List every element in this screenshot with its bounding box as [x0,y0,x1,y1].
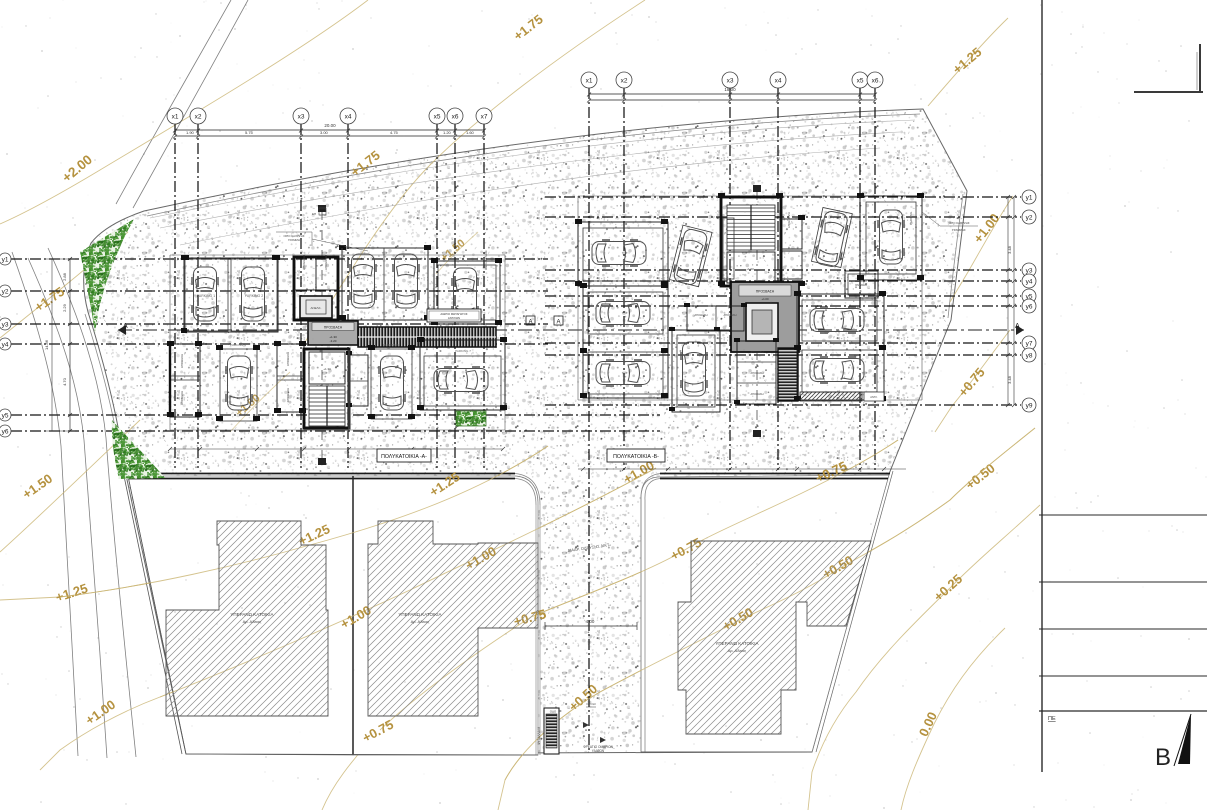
svg-text:+0.25: +0.25 [931,571,965,604]
svg-text:y3: y3 [1026,267,1033,274]
svg-text:y5: y5 [2,412,9,419]
svg-text:+1.00: +1.00 [746,267,754,271]
svg-text:A: A [556,320,560,326]
svg-text:x2: x2 [195,113,202,120]
svg-text:ΟΔΟ: ΟΔΟ [550,710,557,714]
svg-text:y3: y3 [2,321,9,328]
svg-text:ΥΠΕΡΑΝΩ ΚΑΤΟΙΚΙΑ: ΥΠΕΡΑΝΩ ΚΑΤΟΙΚΙΑ [715,641,758,646]
svg-text:ΑΠΟΘΗΚΗ: ΑΠΟΘΗΚΗ [750,350,763,354]
svg-text:y1: y1 [2,256,9,263]
svg-text:B: B [1155,744,1171,771]
svg-text:ΠΡΟΣΒΑΣΗ: ΠΡΟΣΒΑΣΗ [756,290,775,294]
svg-text:3.48: 3.48 [1007,375,1012,384]
svg-text:ΑΠΟΘΗΚΗ: ΑΠΟΘΗΚΗ [694,313,707,317]
svg-text:y6: y6 [1026,303,1033,310]
svg-text:20.00: 20.00 [324,123,336,128]
svg-text:PARKING 1: PARKING 1 [197,294,215,298]
svg-text:x3: x3 [727,77,734,84]
svg-text:A: A [528,320,532,326]
svg-text:4.00: 4.00 [586,619,595,624]
svg-text:x6: x6 [452,113,459,120]
svg-text:ΑΠΟΘΗΚΗ: ΑΠΟΘΗΚΗ [750,392,763,396]
svg-text:ΕΠ: ΕΠ [312,212,316,216]
svg-text:x6: x6 [872,77,879,84]
svg-text:4.75: 4.75 [390,130,399,135]
svg-text:Αρ. Αδειας: Αρ. Αδειας [728,648,747,653]
svg-text:ΑΠΟΘ. ΚΛΙΜ.: ΑΠΟΘ. ΚΛΙΜ. [787,212,791,228]
svg-text:ΠΟΛΥΚΑΤΟΙΚΙΑ -Α-: ΠΟΛΥΚΑΤΟΙΚΙΑ -Α- [381,454,427,460]
svg-text:ΠΕ: ΠΕ [1048,716,1056,722]
svg-text:PARKING: PARKING [909,211,913,225]
svg-text:y1: y1 [1026,194,1033,201]
svg-text:+1.25: +1.25 [950,44,985,77]
svg-text:+0.75: +0.75 [955,365,988,400]
svg-text:x5: x5 [857,77,864,84]
svg-text:+1.00: +1.00 [761,297,769,301]
svg-text:ΓΡΑΜΜΗΣ: ΓΡΑΜΜΗΣ [952,228,966,232]
svg-text:1.60: 1.60 [466,130,475,135]
svg-text:ΨΥΓΑΛΛΑ Μ: ΨΥΓΑΛΛΑ Μ [537,727,541,745]
svg-text:PARKING 7: PARKING 7 [455,349,471,353]
svg-text:y4: y4 [1026,278,1033,285]
svg-text:ΟΡΙΟ ΚΑΛΥΨΗΣ: ΟΡΙΟ ΚΑΛΥΨΗΣ [948,221,969,225]
svg-text:ΥΔΑΤΩΝ: ΥΔΑΤΩΝ [592,749,605,753]
svg-text:ΑΠΟΘΗΚΗ: ΑΠΟΘΗΚΗ [180,391,184,405]
svg-text:14.86: 14.86 [44,339,49,350]
svg-text:ΑΠΟΘΗΚΗ: ΑΠΟΘΗΚΗ [286,352,290,366]
svg-text:ΑΠΟΘΗΚΗ: ΑΠΟΘΗΚΗ [723,313,736,317]
svg-text:y2: y2 [1026,214,1033,221]
svg-text:PARKING 6: PARKING 6 [383,343,399,347]
svg-text:Αρ. Αδειας: Αρ. Αδειας [411,619,430,624]
svg-text:y2: y2 [2,288,9,295]
svg-text:ΘΕΣΗ ΣΤΑΘΜ.: ΘΕΣΗ ΣΤΑΘΜ. [484,250,488,270]
svg-text:ΑΠΟΘΗΚΗ: ΑΠΟΘΗΚΗ [750,371,763,375]
svg-text:+1.30: +1.30 [323,367,331,371]
svg-text:y9: y9 [1026,402,1033,409]
svg-text:ΔΩΜΑΤΙΟ: ΔΩΜΑΤΙΟ [855,279,867,283]
svg-text:-3.20: -3.20 [330,339,337,343]
svg-text:+0.50: +0.50 [963,460,998,492]
svg-text:x1: x1 [172,113,179,120]
svg-text:ΑΠΟΘΗΚΗ: ΑΠΟΘΗΚΗ [180,354,184,368]
svg-text:2.29: 2.29 [62,303,67,312]
svg-text:x2: x2 [621,77,628,84]
svg-text:y8: y8 [1026,352,1033,359]
svg-text:ΥΠΕΡΑΝΩ ΚΑΤΟΙΚΙΑ: ΥΠΕΡΑΝΩ ΚΑΤΟΙΚΙΑ [398,612,441,617]
svg-text:Αρ. Αδειας: Αρ. Αδειας [243,619,262,624]
svg-text:ΑΝΤΛΙΩΝ: ΑΝΤΛΙΩΝ [855,283,866,287]
svg-text:1.90: 1.90 [186,130,195,135]
svg-text:+1.75: +1.75 [511,11,546,43]
svg-text:PARKING 5: PARKING 5 [230,343,246,347]
svg-text:y7: y7 [1026,340,1033,347]
svg-text:+1.00: +1.00 [83,697,119,728]
svg-text:ΑΠΟΘΗΚΗ: ΑΠΟΘΗΚΗ [286,388,290,402]
svg-text:ΥΠΕΡΑΝΩ ΚΑΤΟΙΚΙΑ: ΥΠΕΡΑΝΩ ΚΑΤΟΙΚΙΑ [230,612,273,617]
svg-text:ΑΠΟΘΗΚΗ: ΑΠΟΘΗΚΗ [302,255,306,270]
svg-text:3.48: 3.48 [1007,245,1012,254]
svg-text:3.00: 3.00 [320,130,329,135]
svg-text:0.00: 0.00 [916,709,940,738]
svg-text:x7: x7 [481,113,488,120]
svg-text:+1.25: +1.25 [54,581,90,605]
svg-text:x4: x4 [345,113,352,120]
svg-text:y4: y4 [2,341,9,348]
svg-text:ΠΡΟΣΒΑΣΗ: ΠΡΟΣΒΑΣΗ [324,326,343,330]
svg-text:ΑΝΤΛ.: ΑΝΤΛ. [870,395,878,399]
svg-text:PARKING 2: PARKING 2 [245,294,263,298]
svg-text:+1.50: +1.50 [20,471,56,502]
svg-text:ΑΝΤΛΙΩΝ: ΑΝΤΛΙΩΝ [448,316,460,320]
svg-text:x4: x4 [775,77,782,84]
svg-text:ΑΝΕΛΚ.: ΑΝΕΛΚ. [310,306,321,310]
svg-text:ΠΟΛΥΚΑΤΟΙΚΙΑ -Β-: ΠΟΛΥΚΑΤΟΙΚΙΑ -Β- [613,454,659,460]
svg-text:x3: x3 [298,113,305,120]
svg-text:x1: x1 [586,77,593,84]
svg-text:+2.00: +2.00 [59,152,95,185]
svg-text:ΓΡΑΜΜΗ: ΓΡΑΜΜΗ [288,238,300,242]
svg-text:y6: y6 [2,428,9,435]
svg-text:2.88: 2.88 [62,272,67,281]
svg-text:1.20: 1.20 [443,130,452,135]
svg-text:4.70: 4.70 [62,377,67,386]
svg-text:x5: x5 [434,113,441,120]
svg-text:ΑΠΟΘΗΚΗ: ΑΠΟΘΗΚΗ [324,255,328,270]
